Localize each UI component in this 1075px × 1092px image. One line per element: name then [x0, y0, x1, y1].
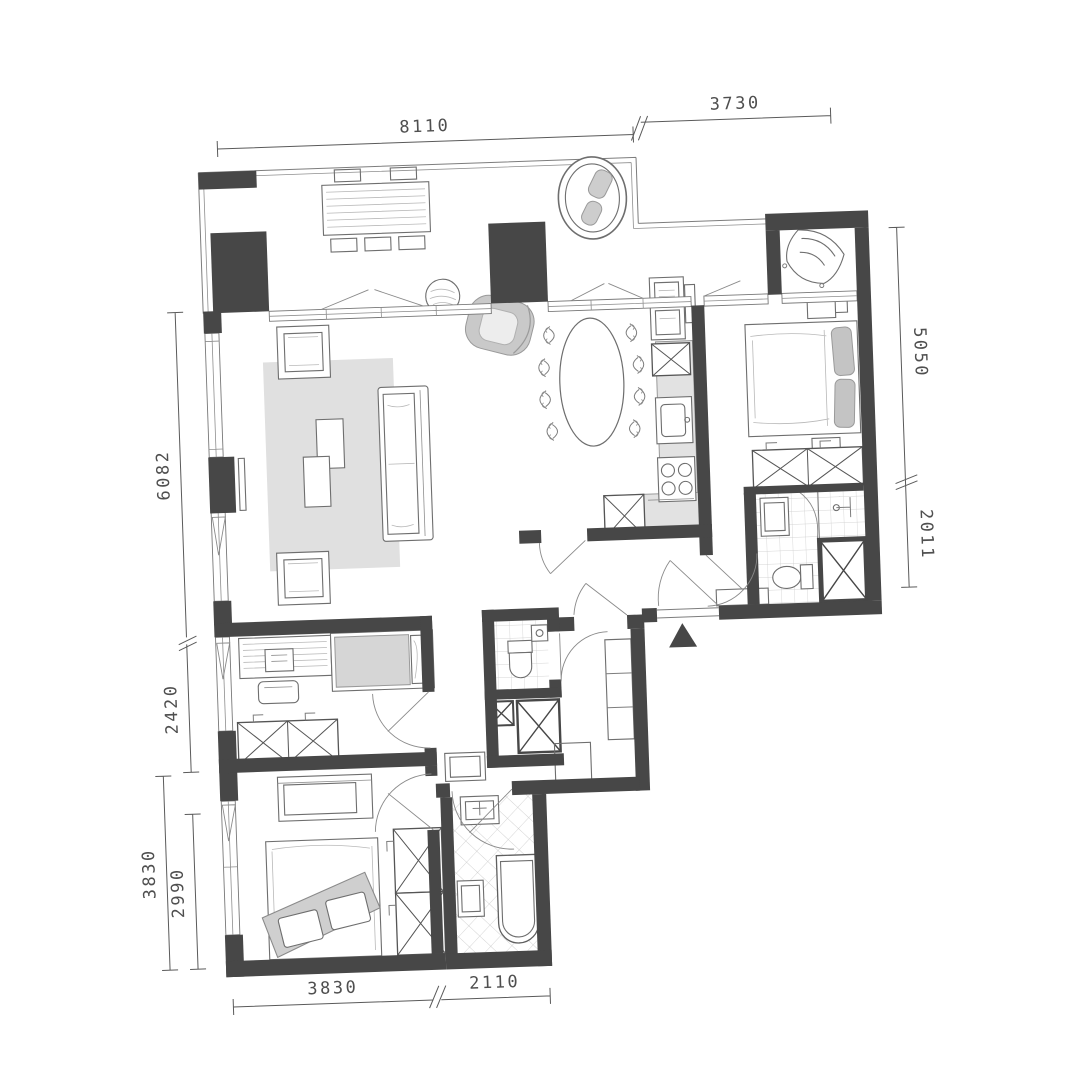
dim-label: 8110 [399, 116, 451, 138]
desk-chair [258, 681, 299, 704]
single-bed [330, 630, 434, 692]
dining-chair [547, 422, 558, 440]
dim-label: 2990 [168, 867, 190, 919]
dim-bottom-3830: 3830 [233, 975, 434, 1015]
dim-label: 5050 [909, 327, 931, 379]
balcony-door [570, 282, 643, 301]
dim-label: 2110 [469, 972, 521, 994]
dining-hall-door [539, 540, 586, 574]
dim-top-8110: 8110 [217, 110, 634, 157]
bathtub [496, 854, 539, 943]
bench [277, 774, 372, 821]
kitchen-cabinet-x [652, 343, 691, 376]
dining-chair [538, 359, 549, 377]
double-bed [260, 838, 382, 960]
dim-label: 3830 [307, 978, 359, 1000]
barrel-chair [778, 223, 850, 291]
dim-left-2420: 2420 [159, 636, 201, 773]
pillow [834, 379, 855, 427]
window-vent [703, 281, 740, 296]
radiator [238, 458, 246, 510]
dim-left-6082: 6082 [148, 312, 194, 638]
hall-cabinet [605, 639, 634, 740]
plan-rotated-group: 8110 3730 5050 2011 6082 [113, 87, 952, 1018]
dim-left-2990: 2990 [166, 814, 206, 970]
dim-bottom-2110: 2110 [428, 971, 550, 1008]
dim-right-5050: 5050 [889, 226, 935, 479]
living-room [260, 276, 548, 605]
dining-area [537, 316, 646, 448]
dim-top-3730: 3730 [630, 91, 831, 141]
bath-sink [460, 796, 499, 825]
dim-label: 2011 [915, 509, 937, 561]
terrace-table [321, 167, 431, 253]
bottom-bedroom [257, 772, 445, 960]
shower-drain [457, 880, 484, 917]
kitchen-hob [658, 457, 697, 502]
dim-label: 2420 [161, 683, 183, 735]
coffee-table [303, 456, 331, 507]
kitchen-sink [655, 397, 693, 444]
floor-plan-page: 8110 3730 5050 2011 6082 [0, 0, 1075, 1092]
armchair [277, 325, 331, 379]
dining-chair [626, 323, 637, 341]
entry-door [655, 559, 719, 618]
dining-chair [633, 355, 644, 373]
dining-chair [634, 387, 645, 405]
dim-label: 3830 [139, 848, 161, 900]
entrance-arrow-icon [668, 623, 697, 648]
shaft [819, 539, 867, 603]
ensuite-sink [760, 497, 789, 536]
dim-label: 6082 [153, 449, 175, 501]
dim-label: 3730 [709, 93, 761, 115]
bottom-bedroom-door [373, 774, 433, 832]
dining-chair [540, 391, 551, 409]
desk [239, 635, 332, 678]
ensuite-toilet [772, 564, 813, 589]
small-bedroom [234, 630, 436, 765]
wc-toilet [508, 640, 533, 678]
small-bedroom-door [373, 692, 431, 750]
dim-right-2011: 2011 [895, 474, 938, 587]
hall-door [573, 582, 627, 617]
dining-chair [629, 419, 640, 437]
egg-chair [557, 156, 628, 240]
wardrobe [752, 440, 864, 489]
armchair [277, 551, 331, 605]
pillow [831, 327, 855, 377]
sofa [378, 386, 433, 542]
wc-sink [531, 625, 548, 642]
double-bed [745, 321, 861, 437]
dining-table [558, 317, 626, 447]
wc-door [560, 632, 610, 682]
floor-plan-drawing: 8110 3730 5050 2011 6082 [0, 0, 1075, 1092]
dining-chair [543, 326, 554, 344]
